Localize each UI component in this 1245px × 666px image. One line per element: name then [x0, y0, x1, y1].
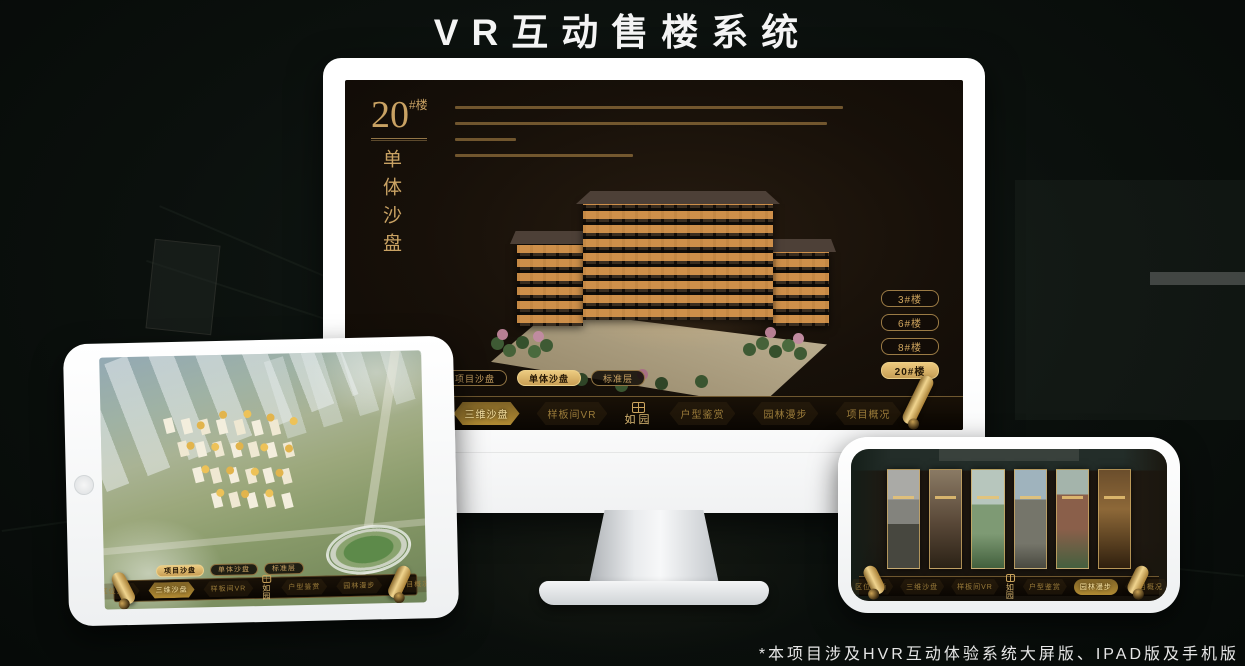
stage: VR互动售楼系统 *本项目涉及HVR互动体验系统大屏版、IPAD版及手机版 20…: [0, 0, 1245, 666]
nav-item-unit-plans[interactable]: 户型鉴赏: [669, 402, 735, 425]
tablet-device: 项目沙盘 单体沙盘 标准层 区位交通 三维沙盘 样板间VR 如园 户型鉴赏 园林…: [63, 336, 459, 627]
phone-device: 区位交通 三维沙盘 样板间VR 如园 户型鉴赏 园林漫步 项目概况: [838, 437, 1180, 613]
panel-caption: [1104, 496, 1125, 499]
nav-item-garden-walk[interactable]: 园林漫步: [752, 402, 818, 425]
brand-logo: 如园: [262, 575, 273, 601]
tablet-frame: 项目沙盘 单体沙盘 标准层 区位交通 三维沙盘 样板间VR 如园 户型鉴赏 园林…: [63, 336, 459, 627]
nav-item-garden-walk[interactable]: 园林漫步: [1074, 579, 1118, 595]
page-title: VR互动售楼系统: [0, 2, 1245, 56]
brand-logo-text: 如园: [262, 585, 272, 601]
panel-caption: [935, 496, 956, 499]
roof: [766, 239, 836, 252]
description-line: [455, 106, 843, 109]
monitor-stand-base: [539, 581, 769, 605]
floor-button[interactable]: 8#楼: [881, 338, 939, 355]
nav-item-unit-plans[interactable]: 户型鉴赏: [281, 579, 327, 596]
cloud-haze: [311, 350, 427, 418]
seal-icon: [263, 575, 272, 583]
phone-nav-bar: 区位交通 三维沙盘 样板间VR 如园 户型鉴赏 园林漫步 项目概况: [859, 576, 1159, 596]
tablet-screen: 项目沙盘 单体沙盘 标准层 区位交通 三维沙盘 样板间VR 如园 户型鉴赏 园林…: [99, 350, 427, 609]
monitor-stand-neck: [589, 510, 719, 584]
description-line: [455, 154, 633, 157]
brand-logo: 如园: [624, 402, 652, 426]
phone-screen: 区位交通 三维沙盘 样板间VR 如园 户型鉴赏 园林漫步 项目概况: [851, 449, 1167, 601]
nav-item-3d-sandbox[interactable]: 三维沙盘: [454, 402, 520, 425]
tab-single-sandbox[interactable]: 单体沙盘: [517, 370, 581, 386]
brand-logo: 如园: [1006, 574, 1016, 600]
ceiling-beam: [939, 449, 1078, 461]
gallery-panel-garden[interactable]: [971, 469, 1004, 569]
nav-item-garden-walk[interactable]: 园林漫步: [336, 577, 382, 594]
tab-project-sandbox[interactable]: 项目沙盘: [156, 564, 204, 577]
panel-caption: [1020, 496, 1041, 499]
nav-item-unit-plans[interactable]: 户型鉴赏: [1023, 579, 1067, 595]
building-wing-left: [517, 242, 583, 326]
building-main: [583, 202, 773, 320]
floor-button-group: 3#楼 6#楼 8#楼 20#楼: [881, 290, 939, 379]
nav-item-3d-sandbox[interactable]: 三维沙盘: [148, 582, 194, 599]
project-description: [455, 106, 859, 170]
title-rule: [371, 138, 427, 141]
gallery-panel-lounge[interactable]: [1098, 469, 1131, 569]
panel-caption: [977, 496, 998, 499]
footnote: *本项目涉及HVR互动体验系统大屏版、IPAD版及手机版: [759, 640, 1239, 664]
nav-item-project-overview[interactable]: 项目概况: [835, 402, 901, 425]
brand-logo-text: 如园: [1006, 584, 1016, 600]
roof: [510, 231, 590, 244]
nav-item-3d-sandbox[interactable]: 三维沙盘: [900, 579, 944, 595]
scroll-menu-icon[interactable]: [116, 571, 139, 605]
nav-item-showroom-vr[interactable]: 样板间VR: [537, 402, 608, 425]
building-number: 20: [371, 94, 409, 136]
bg-building-silhouette: [1015, 180, 1245, 420]
sandbox-title-block: 20#楼 单体沙盘: [371, 96, 428, 279]
tab-single-sandbox[interactable]: 单体沙盘: [210, 563, 258, 576]
description-line: [455, 138, 516, 141]
nav-item-showroom-vr[interactable]: 样板间VR: [203, 580, 253, 597]
floor-button[interactable]: 6#楼: [881, 314, 939, 331]
seal-icon: [632, 402, 645, 413]
blossom-trees: [497, 329, 508, 340]
scene-gallery: [887, 469, 1131, 569]
scroll-menu-icon[interactable]: [392, 565, 415, 599]
home-button[interactable]: [74, 475, 94, 495]
phone-frame: 区位交通 三维沙盘 样板间VR 如园 户型鉴赏 园林漫步 项目概况: [838, 437, 1180, 613]
building-number-suffix: #楼: [409, 98, 428, 112]
description-line: [455, 122, 827, 125]
sandbox-title-vertical: 单体沙盘: [377, 149, 404, 279]
gallery-panel-exterior[interactable]: [1056, 469, 1089, 569]
floor-button[interactable]: 3#楼: [881, 290, 939, 307]
seal-icon: [1006, 574, 1015, 582]
gallery-panel-courtyard[interactable]: [887, 469, 920, 569]
bg-bright-strip: [1150, 272, 1245, 285]
building-wing-right: [773, 250, 829, 326]
brand-logo-text: 如园: [624, 415, 652, 426]
nav-item-showroom-vr[interactable]: 样板间VR: [951, 579, 999, 595]
bg-plaque: [145, 239, 220, 335]
sandbox-tabs: 项目沙盘 单体沙盘 标准层: [443, 370, 645, 386]
panel-caption: [893, 496, 914, 499]
scroll-menu-icon[interactable]: [911, 374, 951, 426]
gallery-panel-interior[interactable]: [929, 469, 962, 569]
scroll-menu-icon[interactable]: [1131, 565, 1151, 595]
scroll-menu-icon[interactable]: [867, 565, 887, 595]
tab-standard-floor[interactable]: 标准层: [264, 562, 304, 575]
roof: [576, 191, 780, 204]
tablet-sandbox-tabs: 项目沙盘 单体沙盘 标准层: [156, 562, 304, 577]
panel-caption: [1062, 496, 1083, 499]
tab-standard-floor[interactable]: 标准层: [591, 370, 645, 386]
gallery-panel-facade[interactable]: [1014, 469, 1047, 569]
